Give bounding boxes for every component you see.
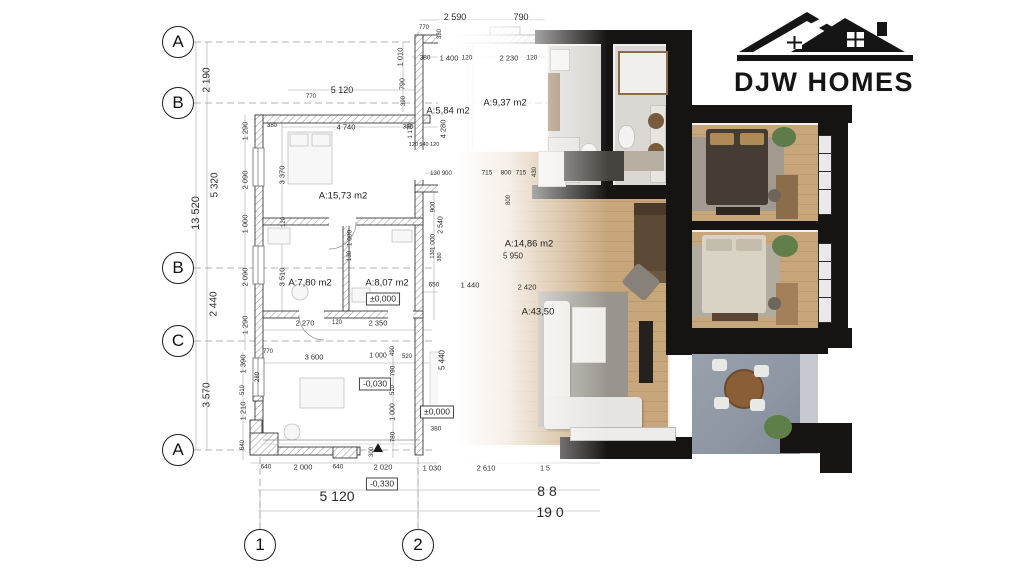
toilet bbox=[618, 125, 635, 149]
brand-name: DJW HOMES bbox=[726, 67, 922, 98]
plant bbox=[772, 235, 798, 257]
tv-console bbox=[639, 321, 653, 383]
house-icon bbox=[729, 6, 919, 64]
terrace-step bbox=[820, 445, 852, 473]
pillow bbox=[710, 133, 734, 145]
sink bbox=[648, 113, 664, 129]
pillow bbox=[740, 133, 764, 145]
chair bbox=[768, 189, 781, 202]
window-3d bbox=[818, 135, 832, 215]
pillow bbox=[736, 239, 762, 251]
wall bbox=[678, 340, 828, 354]
chair bbox=[768, 297, 781, 310]
vanity-mirror bbox=[618, 51, 668, 95]
plant bbox=[764, 415, 792, 439]
bed-bench bbox=[712, 313, 758, 321]
wall bbox=[684, 221, 820, 230]
pillow bbox=[706, 239, 732, 251]
terrace-chair bbox=[754, 365, 769, 377]
kitchen-counter bbox=[624, 151, 664, 171]
floor-plan-page: 2 5907907703801 0107903903801 4001202 23… bbox=[0, 0, 1024, 577]
terrace-chair bbox=[712, 359, 727, 371]
brand-logo: DJW HOMES bbox=[726, 6, 922, 94]
terrace-chair bbox=[750, 399, 765, 411]
plant bbox=[772, 127, 796, 147]
blend-gradient bbox=[438, 20, 608, 475]
wall bbox=[666, 189, 692, 355]
terrace-chair bbox=[714, 397, 729, 409]
window-3d bbox=[818, 243, 832, 323]
windows-cad bbox=[253, 148, 264, 396]
bed-bench bbox=[716, 207, 760, 215]
